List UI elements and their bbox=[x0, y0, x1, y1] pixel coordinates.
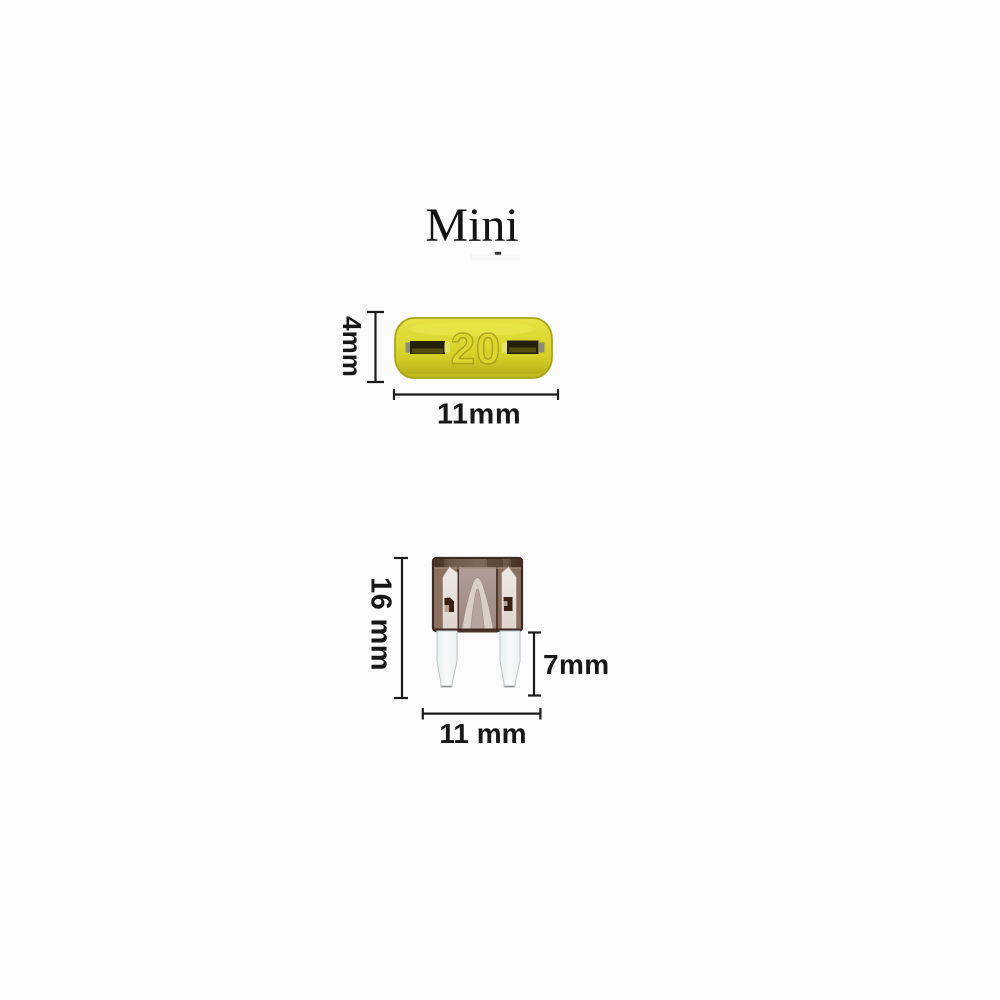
svg-text:Mini: Mini bbox=[425, 199, 518, 252]
svg-text:7mm: 7mm bbox=[543, 649, 610, 680]
svg-text:11 mm: 11 mm bbox=[439, 718, 526, 749]
svg-text:11mm: 11mm bbox=[437, 399, 521, 431]
svg-text:4mm: 4mm bbox=[337, 316, 367, 377]
svg-text:16 mm: 16 mm bbox=[364, 577, 396, 671]
svg-text:20: 20 bbox=[451, 326, 501, 374]
